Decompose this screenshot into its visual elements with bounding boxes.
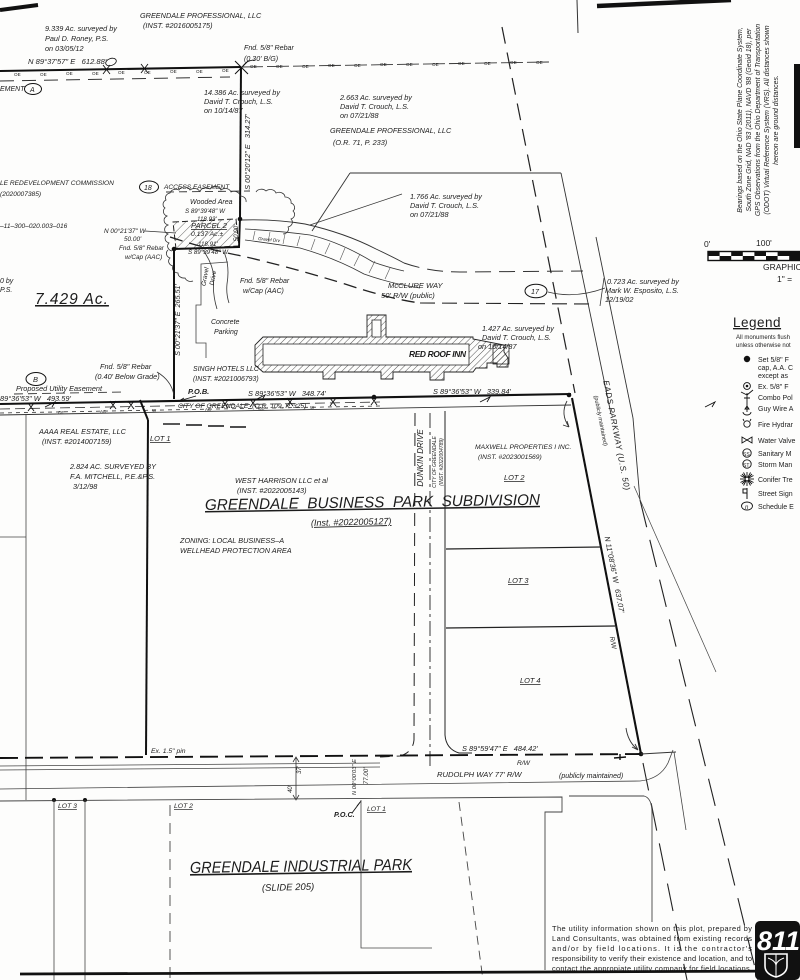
svg-text:w/Cap (AAC): w/Cap (AAC) (243, 288, 284, 295)
svg-text:Fnd. 5/8" Rebar: Fnd. 5/8" Rebar (244, 44, 294, 52)
svg-text:EMENT: EMENT (0, 86, 25, 93)
svg-text:811: 811 (757, 926, 800, 956)
svg-text:S 89°39'48" W: S 89°39'48" W (185, 208, 226, 215)
svg-text:on 10/14/87: on 10/14/87 (204, 106, 243, 115)
svg-text:14.386 Ac. surveyed by: 14.386 Ac. surveyed by (204, 88, 281, 97)
svg-text:LE REDEVELOPMENT COMMISSION: LE REDEVELOPMENT COMMISSION (0, 180, 114, 187)
svg-text:LOT 1: LOT 1 (150, 434, 171, 443)
svg-text:LOT 2: LOT 2 (174, 803, 193, 810)
svg-text:GREENDALE INDUSTRIAL PARK: GREENDALE INDUSTRIAL PARK (190, 857, 413, 877)
svg-text:1.766 Ac. surveyed by: 1.766 Ac. surveyed by (410, 192, 483, 201)
svg-text:Ex. 1.5" pin: Ex. 1.5" pin (151, 748, 186, 755)
svg-text:GPS Observations from the Ohio: GPS Observations from the Ohio Departmen… (755, 24, 762, 216)
svg-text:ZONING: LOCAL BUSINESS–A: ZONING: LOCAL BUSINESS–A (179, 536, 284, 545)
svg-text:0.723 Ac. surveyed by: 0.723 Ac. surveyed by (607, 277, 680, 286)
svg-text:Fnd. 5/8" Rebar: Fnd. 5/8" Rebar (119, 245, 165, 252)
svg-text:LOT 1: LOT 1 (367, 806, 386, 813)
svg-text:(0.30' B/G): (0.30' B/G) (244, 55, 278, 63)
svg-text:OE: OE (170, 69, 177, 74)
svg-text:S 00°21'37" E 265.51': S 00°21'37" E 265.51' (173, 284, 182, 356)
svg-text:OE: OE (92, 71, 99, 76)
svg-text:OE: OE (354, 63, 361, 68)
svg-text:OE: OE (380, 62, 387, 67)
svg-text:(INST. #2023001569): (INST. #2023001569) (478, 454, 542, 461)
svg-text:OE: OE (328, 63, 335, 68)
svg-text:(INST. #2022004789): (INST. #2022004789) (439, 438, 445, 486)
svg-text:N 00°21'37" W: N 00°21'37" W (104, 227, 147, 235)
svg-text:Set 5/8" F: Set 5/8" F (758, 357, 789, 364)
svg-text:P.O.B.: P.O.B. (188, 387, 209, 396)
svg-text:OE: OE (458, 61, 465, 66)
svg-text:DUNKIN DRIVE: DUNKIN DRIVE (416, 429, 425, 487)
svg-text:B: B (33, 375, 38, 384)
svg-text:WEST HARRISON LLC et al: WEST HARRISON LLC et al (235, 476, 328, 485)
svg-text:AC: AC (205, 407, 211, 412)
svg-text:Schedule E: Schedule E (758, 504, 794, 511)
svg-text:OE: OE (406, 62, 413, 67)
svg-text:Fnd. 5/8" Rebar: Fnd. 5/8" Rebar (100, 362, 152, 371)
svg-text:PARCEL 2: PARCEL 2 (191, 221, 228, 230)
svg-text:N 00°00'03" E: N 00°00'03" E (352, 759, 358, 795)
svg-text:Bearings based on the Ohio Sta: Bearings based on the Ohio State Plane C… (737, 27, 744, 212)
svg-text:P.S.: P.S. (0, 287, 12, 294)
svg-text:OE: OE (144, 70, 151, 75)
svg-text:on 07/21/88: on 07/21/88 (340, 111, 379, 120)
svg-text:RUDOLPH WAY 77' R/W: RUDOLPH WAY 77' R/W (437, 770, 522, 779)
svg-text:2.824 AC. SURVEYED BY: 2.824 AC. SURVEYED BY (69, 462, 157, 471)
svg-text:40': 40' (288, 784, 294, 793)
svg-text:1.427 Ac. surveyed by: 1.427 Ac. surveyed by (482, 324, 555, 333)
svg-text:P.O.C.: P.O.C. (334, 810, 355, 819)
svg-text:Fnd. 5/8" Rebar: Fnd. 5/8" Rebar (240, 278, 290, 285)
svg-text:Street Sign: Street Sign (758, 491, 793, 498)
svg-text:OE: OE (14, 72, 21, 77)
svg-text:9.339 Ac. surveyed by: 9.339 Ac. surveyed by (45, 24, 118, 33)
svg-text:0.137 Ac.±: 0.137 Ac.± (191, 231, 223, 238)
svg-text:on 03/05/12: on 03/05/12 (45, 44, 84, 53)
svg-text:(INST. #2022005143): (INST. #2022005143) (237, 486, 307, 495)
svg-text:(O.R. 71, P. 233): (O.R. 71, P. 233) (333, 138, 387, 147)
svg-text:The utility information shown: The utility information shown on this pl… (552, 924, 752, 933)
svg-text:Wooded Area: Wooded Area (190, 199, 233, 206)
svg-text:David T. Crouch, L.S.: David T. Crouch, L.S. (340, 102, 409, 111)
svg-text:OE: OE (510, 60, 517, 65)
svg-text:(INST. #2014007159): (INST. #2014007159) (42, 437, 112, 446)
svg-text:hereon are ground distances.: hereon are ground distances. (773, 75, 780, 165)
svg-text:S 89°59'47" E 484.42': S 89°59'47" E 484.42' (462, 744, 538, 753)
svg-text:17: 17 (531, 287, 540, 296)
svg-text:GREENDALE PROFESSIONAL, LLC: GREENDALE PROFESSIONAL, LLC (330, 126, 452, 135)
svg-text:w/Cap (AAC): w/Cap (AAC) (125, 254, 162, 261)
svg-text:2.663 Ac. surveyed by: 2.663 Ac. surveyed by (339, 93, 413, 102)
svg-text:(Inst. #2022005127): (Inst. #2022005127) (311, 516, 392, 528)
svg-text:LOT 4: LOT 4 (520, 676, 541, 685)
svg-text:RED ROOF INN: RED ROOF INN (409, 349, 467, 359)
svg-text:3/12/98: 3/12/98 (73, 482, 98, 491)
svg-text:OE: OE (250, 64, 257, 69)
svg-text:50' R/W (public): 50' R/W (public) (381, 291, 435, 300)
svg-text:100': 100' (756, 238, 772, 248)
svg-text:(ODOT) Virtual Reference Syste: (ODOT) Virtual Reference System (VRS). A… (764, 25, 771, 214)
svg-text:OE: OE (302, 64, 309, 69)
svg-text:R/W: R/W (517, 760, 531, 767)
svg-text:Water Valve: Water Valve (758, 438, 795, 445)
svg-text:A: A (29, 87, 35, 94)
svg-text:Legend: Legend (733, 315, 781, 330)
svg-text:89°36'53" W 493.59': 89°36'53" W 493.59' (0, 394, 71, 403)
svg-text:Sanitary M: Sanitary M (758, 451, 792, 458)
svg-text:–11–300–020.003–016: –11–300–020.003–016 (0, 223, 68, 230)
svg-text:responsibility to verify their: responsibility to verify their existence… (552, 954, 752, 963)
svg-text:All monuments flush: All monuments flush (736, 335, 790, 341)
svg-text:LOT 2: LOT 2 (504, 473, 525, 482)
svg-text:37': 37' (297, 765, 303, 774)
svg-text:Concrete: Concrete (211, 319, 240, 326)
svg-text:(2020007385): (2020007385) (0, 191, 41, 198)
svg-text:Land Consultants, was obtained: Land Consultants, was obtained from exis… (552, 934, 752, 943)
svg-text:OE: OE (196, 69, 203, 74)
svg-text:18: 18 (144, 185, 152, 192)
svg-text:AAAA REAL ESTATE, LLC: AAAA REAL ESTATE, LLC (38, 427, 127, 436)
svg-text:1" =: 1" = (777, 274, 792, 284)
svg-text:(INST. #2016005175): (INST. #2016005175) (143, 21, 213, 30)
svg-text:WELLHEAD PROTECTION AREA: WELLHEAD PROTECTION AREA (180, 546, 292, 555)
svg-text:LOT 3: LOT 3 (508, 576, 529, 585)
svg-text:OE: OE (58, 410, 64, 415)
svg-text:Paul D. Roney, P.S.: Paul D. Roney, P.S. (45, 34, 108, 43)
svg-text:OE: OE (118, 70, 125, 75)
svg-text:SINGH HOTELS LLC: SINGH HOTELS LLC (193, 366, 260, 373)
svg-text:Parking: Parking (214, 329, 238, 336)
svg-text:OE: OE (40, 72, 47, 77)
svg-text:GREENDALE PROFESSIONAL, LLC: GREENDALE PROFESSIONAL, LLC (140, 11, 262, 20)
svg-text:LOT 3: LOT 3 (58, 803, 77, 810)
svg-text:Ex. 5/8" F: Ex. 5/8" F (758, 384, 789, 391)
svg-text:OE: OE (484, 61, 491, 66)
svg-text:David T. Crouch, L.S.: David T. Crouch, L.S. (482, 333, 551, 342)
svg-text:50.00': 50.00' (124, 236, 142, 243)
svg-text:OE: OE (432, 62, 439, 67)
svg-text:0 by: 0 by (0, 278, 14, 285)
svg-text:F.A. MITCHELL, P.E.&P.S.: F.A. MITCHELL, P.E.&P.S. (70, 472, 155, 481)
svg-text:McCLURE WAY: McCLURE WAY (388, 281, 444, 290)
svg-text:(publicly maintained): (publicly maintained) (559, 773, 623, 780)
svg-text:MAXWELL PROPERTIES I INC.: MAXWELL PROPERTIES I INC. (475, 444, 572, 451)
svg-text:N 89°37'57" E 612.88': N 89°37'57" E 612.88' (28, 57, 107, 66)
svg-text:0': 0' (704, 239, 711, 249)
svg-text:S 00°20'12" E 314.27': S 00°20'12" E 314.27' (243, 114, 252, 190)
svg-text:Storm Man: Storm Man (758, 462, 792, 469)
svg-text:Combo Pol: Combo Pol (758, 395, 793, 402)
svg-text:Conifer Tre: Conifer Tre (758, 477, 793, 484)
svg-text:(0.40' Below Grade): (0.40' Below Grade) (95, 372, 160, 381)
svg-text:CITY OF GREENDALE: CITY OF GREENDALE (432, 435, 438, 487)
svg-text:OE: OE (222, 68, 229, 73)
svg-text:OE: OE (258, 406, 264, 411)
svg-text:OE: OE (536, 60, 543, 65)
svg-text:unless otherwise not: unless otherwise not (736, 343, 791, 349)
svg-text:David T. Crouch, L.S.: David T. Crouch, L.S. (204, 97, 273, 106)
svg-text:AC: AC (100, 409, 106, 414)
svg-text:GRAPHIC: GRAPHIC (763, 262, 800, 272)
svg-text:SS: SS (743, 452, 750, 458)
svg-text:(SLIDE 205): (SLIDE 205) (262, 882, 315, 894)
svg-text:except as: except as (758, 373, 788, 380)
svg-text:(INST. #2021006793): (INST. #2021006793) (193, 376, 259, 383)
svg-text:cap, A.A. C: cap, A.A. C (758, 365, 793, 372)
svg-text:on 07/21/88: on 07/21/88 (410, 210, 449, 219)
svg-text:S 89°39'48" W: S 89°39'48" W (188, 249, 229, 256)
svg-text:S 89°36'53" W 348.74': S 89°36'53" W 348.74' (248, 389, 326, 398)
svg-text:David T. Crouch, L.S.: David T. Crouch, L.S. (410, 201, 479, 210)
svg-text:Fire Hydrar: Fire Hydrar (758, 422, 794, 429)
svg-text:7.429 Ac.: 7.429 Ac. (35, 291, 109, 308)
svg-text:Mark W. Esposito, L.S.: Mark W. Esposito, L.S. (605, 286, 679, 295)
svg-text:OE: OE (276, 64, 283, 69)
svg-text:South Zone Grid, NAD '83 (2011: South Zone Grid, NAD '83 (2011), NAVD '8… (746, 28, 753, 212)
svg-text:ST: ST (743, 463, 749, 469)
svg-text:Proposed Utility Easement: Proposed Utility Easement (16, 384, 103, 393)
svg-text:Guy Wire A: Guy Wire A (758, 406, 794, 413)
svg-text:OE: OE (66, 71, 73, 76)
svg-text:77.00': 77.00' (363, 767, 370, 784)
